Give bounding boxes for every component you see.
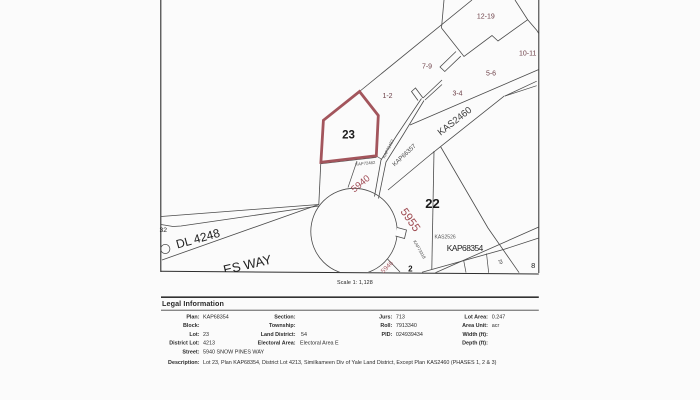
svg-text:Plan:: Plan:	[186, 314, 199, 320]
svg-text:acr: acr	[492, 323, 500, 329]
svg-text:Depth (ft):: Depth (ft):	[462, 341, 488, 347]
svg-text:Township:: Township:	[269, 323, 296, 329]
svg-text:ES WAY: ES WAY	[222, 252, 274, 278]
svg-text:8: 8	[531, 261, 535, 270]
svg-text:0.247: 0.247	[492, 314, 506, 320]
svg-text:Legal Information: Legal Information	[162, 299, 224, 308]
svg-text:Description:: Description:	[168, 360, 200, 366]
svg-text:5-6: 5-6	[486, 71, 496, 78]
svg-text:5940 SNOW PINES WAY: 5940 SNOW PINES WAY	[203, 349, 265, 355]
svg-text:KAP73318: KAP73318	[412, 239, 427, 260]
svg-text:Scale 1: 1,128: Scale 1: 1,128	[337, 280, 373, 286]
svg-text:PID:: PID:	[382, 332, 393, 338]
svg-text:KAS2460: KAS2460	[436, 105, 474, 138]
svg-text:23: 23	[342, 129, 355, 141]
svg-text:7913340: 7913340	[396, 323, 417, 329]
svg-text:KAS2526: KAS2526	[435, 235, 456, 241]
svg-text:Land District:: Land District:	[261, 332, 296, 338]
svg-text:7-9: 7-9	[422, 63, 432, 70]
svg-text:2: 2	[408, 264, 413, 273]
svg-text:1-2: 1-2	[382, 93, 392, 100]
svg-text:22: 22	[425, 196, 439, 211]
svg-text:District Lot:: District Lot:	[169, 341, 199, 347]
svg-text:Roll:: Roll:	[380, 323, 392, 329]
svg-text:12-19: 12-19	[477, 13, 495, 20]
svg-text:32: 32	[160, 227, 168, 234]
svg-text:Electoral Area E: Electoral Area E	[300, 341, 339, 347]
svg-text:KAP68354: KAP68354	[203, 314, 229, 320]
svg-text:KAP72482: KAP72482	[381, 138, 395, 159]
svg-text:Section:: Section:	[274, 314, 295, 320]
svg-text:Jurs:: Jurs:	[379, 314, 392, 320]
svg-text:713: 713	[396, 314, 405, 320]
svg-text:Lot 23, Plan KAP68354, Distric: Lot 23, Plan KAP68354, District Lot 4213…	[203, 360, 497, 366]
svg-text:Width (ft):: Width (ft):	[462, 332, 488, 338]
svg-text:Lot:: Lot:	[189, 332, 199, 338]
svg-text:3-4: 3-4	[452, 90, 462, 97]
svg-text:10-11: 10-11	[519, 51, 536, 58]
svg-text:KAP66357: KAP66357	[391, 142, 418, 168]
svg-text:4213: 4213	[203, 341, 215, 347]
svg-text:Area Unit:: Area Unit:	[462, 323, 488, 329]
svg-text:5940: 5940	[349, 173, 372, 195]
svg-text:Block:: Block:	[183, 323, 200, 329]
svg-text:024939434: 024939434	[396, 332, 423, 338]
svg-text:54: 54	[301, 332, 307, 338]
svg-text:Street:: Street:	[182, 349, 199, 355]
svg-text:Lot Area:: Lot Area:	[464, 314, 488, 320]
svg-text:KAP72482: KAP72482	[355, 160, 376, 167]
svg-text:Electoral Area:: Electoral Area:	[258, 341, 296, 347]
svg-text:KAP68354: KAP68354	[447, 243, 484, 253]
svg-text:23: 23	[203, 332, 209, 338]
svg-text:29: 29	[497, 258, 504, 265]
